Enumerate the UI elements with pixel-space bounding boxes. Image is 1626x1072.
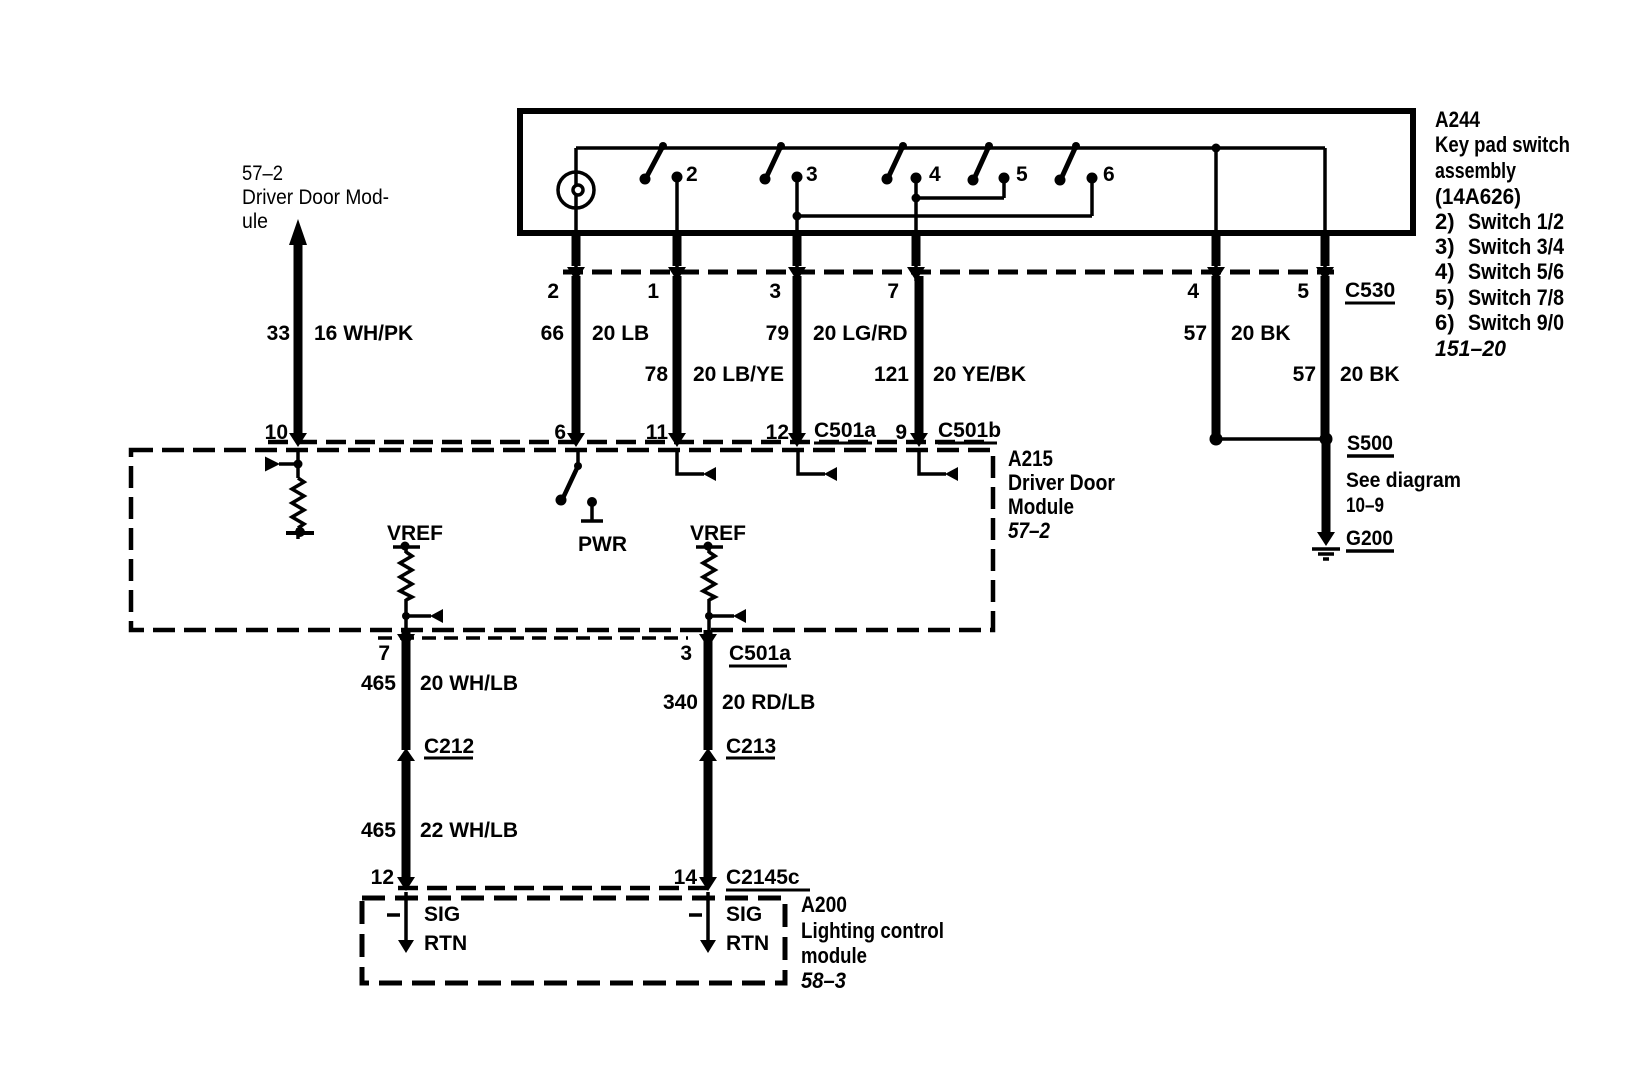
svg-text:6): 6) bbox=[1435, 310, 1455, 335]
svg-text:20 LB: 20 LB bbox=[592, 322, 649, 345]
svg-text:C501a: C501a bbox=[814, 419, 876, 442]
svg-text:Module: Module bbox=[1008, 494, 1074, 519]
svg-text:79: 79 bbox=[766, 322, 789, 345]
svg-text:SIG: SIG bbox=[726, 903, 762, 926]
svg-text:C501b: C501b bbox=[938, 419, 1001, 442]
svg-text:6: 6 bbox=[1103, 163, 1115, 186]
svg-text:G200: G200 bbox=[1346, 527, 1393, 550]
svg-text:SIG: SIG bbox=[424, 903, 460, 926]
svg-text:465: 465 bbox=[361, 672, 396, 695]
svg-text:2: 2 bbox=[686, 163, 698, 186]
svg-text:10: 10 bbox=[265, 421, 288, 444]
svg-text:C501a: C501a bbox=[729, 642, 791, 665]
svg-text:VREF: VREF bbox=[690, 522, 746, 545]
svg-text:C530: C530 bbox=[1345, 279, 1395, 302]
svg-text:ule: ule bbox=[242, 209, 268, 233]
svg-text:66: 66 bbox=[541, 322, 564, 345]
svg-text:(14A626): (14A626) bbox=[1435, 184, 1521, 209]
svg-text:1: 1 bbox=[647, 280, 659, 303]
svg-text:16 WH/PK: 16 WH/PK bbox=[314, 322, 413, 345]
svg-text:A215: A215 bbox=[1008, 446, 1053, 471]
svg-text:4: 4 bbox=[929, 163, 941, 186]
svg-text:20 LB/YE: 20 LB/YE bbox=[693, 363, 784, 386]
svg-text:57: 57 bbox=[1184, 322, 1207, 345]
svg-text:20 YE/BK: 20 YE/BK bbox=[933, 363, 1026, 386]
svg-text:C212: C212 bbox=[424, 735, 474, 758]
svg-text:Driver Door: Driver Door bbox=[1008, 470, 1115, 495]
svg-text:12: 12 bbox=[766, 421, 789, 444]
svg-text:20 LG/RD: 20 LG/RD bbox=[813, 322, 908, 345]
svg-text:Switch 7/8: Switch 7/8 bbox=[1468, 285, 1564, 310]
svg-text:57: 57 bbox=[1293, 363, 1316, 386]
svg-text:C213: C213 bbox=[726, 735, 776, 758]
svg-text:module: module bbox=[801, 943, 867, 968]
svg-text:A244: A244 bbox=[1435, 107, 1481, 132]
svg-text:2: 2 bbox=[547, 280, 559, 303]
svg-text:PWR: PWR bbox=[578, 533, 627, 556]
svg-text:10–9: 10–9 bbox=[1346, 494, 1384, 517]
svg-text:A200: A200 bbox=[801, 892, 847, 917]
svg-text:assembly: assembly bbox=[1435, 158, 1517, 183]
svg-text:7: 7 bbox=[378, 642, 390, 665]
svg-text:58–3: 58–3 bbox=[801, 968, 846, 993]
svg-text:See diagram: See diagram bbox=[1346, 469, 1461, 492]
svg-text:Switch 1/2: Switch 1/2 bbox=[1468, 209, 1564, 234]
svg-text:Switch 3/4: Switch 3/4 bbox=[1468, 234, 1565, 259]
svg-text:14: 14 bbox=[674, 866, 698, 889]
svg-text:20 BK: 20 BK bbox=[1340, 363, 1400, 386]
svg-text:33: 33 bbox=[267, 322, 290, 345]
svg-text:5: 5 bbox=[1016, 163, 1028, 186]
svg-text:C2145c: C2145c bbox=[726, 866, 800, 889]
svg-text:78: 78 bbox=[645, 363, 669, 386]
svg-text:22 WH/LB: 22 WH/LB bbox=[420, 819, 518, 842]
svg-text:121: 121 bbox=[874, 363, 909, 386]
svg-text:4: 4 bbox=[1187, 280, 1199, 303]
svg-text:3: 3 bbox=[769, 280, 781, 303]
svg-text:Switch 5/6: Switch 5/6 bbox=[1468, 259, 1564, 284]
svg-text:5): 5) bbox=[1435, 285, 1455, 310]
svg-text:Driver Door Mod-: Driver Door Mod- bbox=[242, 185, 389, 209]
svg-text:Key pad switch: Key pad switch bbox=[1435, 132, 1570, 157]
svg-text:7: 7 bbox=[887, 280, 899, 303]
svg-text:VREF: VREF bbox=[387, 522, 443, 545]
svg-text:57–2: 57–2 bbox=[242, 161, 283, 185]
svg-text:3: 3 bbox=[806, 163, 818, 186]
svg-text:3: 3 bbox=[680, 642, 692, 665]
svg-text:20 BK: 20 BK bbox=[1231, 322, 1291, 345]
svg-text:20 WH/LB: 20 WH/LB bbox=[420, 672, 518, 695]
svg-text:2): 2) bbox=[1435, 209, 1455, 234]
svg-text:20 RD/LB: 20 RD/LB bbox=[722, 691, 815, 714]
svg-text:151–20: 151–20 bbox=[1435, 336, 1507, 361]
svg-text:11: 11 bbox=[646, 421, 669, 444]
svg-text:4): 4) bbox=[1435, 259, 1455, 284]
svg-text:RTN: RTN bbox=[424, 932, 467, 955]
svg-text:12: 12 bbox=[371, 866, 394, 889]
svg-text:57–2: 57–2 bbox=[1008, 518, 1051, 543]
svg-text:S500: S500 bbox=[1347, 432, 1393, 455]
svg-text:Switch 9/0: Switch 9/0 bbox=[1468, 310, 1564, 335]
svg-text:RTN: RTN bbox=[726, 932, 769, 955]
svg-text:Lighting control: Lighting control bbox=[801, 918, 944, 943]
svg-text:465: 465 bbox=[361, 819, 396, 842]
svg-text:3): 3) bbox=[1435, 234, 1455, 259]
svg-text:6: 6 bbox=[554, 421, 566, 444]
svg-text:5: 5 bbox=[1297, 280, 1309, 303]
svg-text:340: 340 bbox=[663, 691, 698, 714]
svg-text:9: 9 bbox=[895, 421, 907, 444]
